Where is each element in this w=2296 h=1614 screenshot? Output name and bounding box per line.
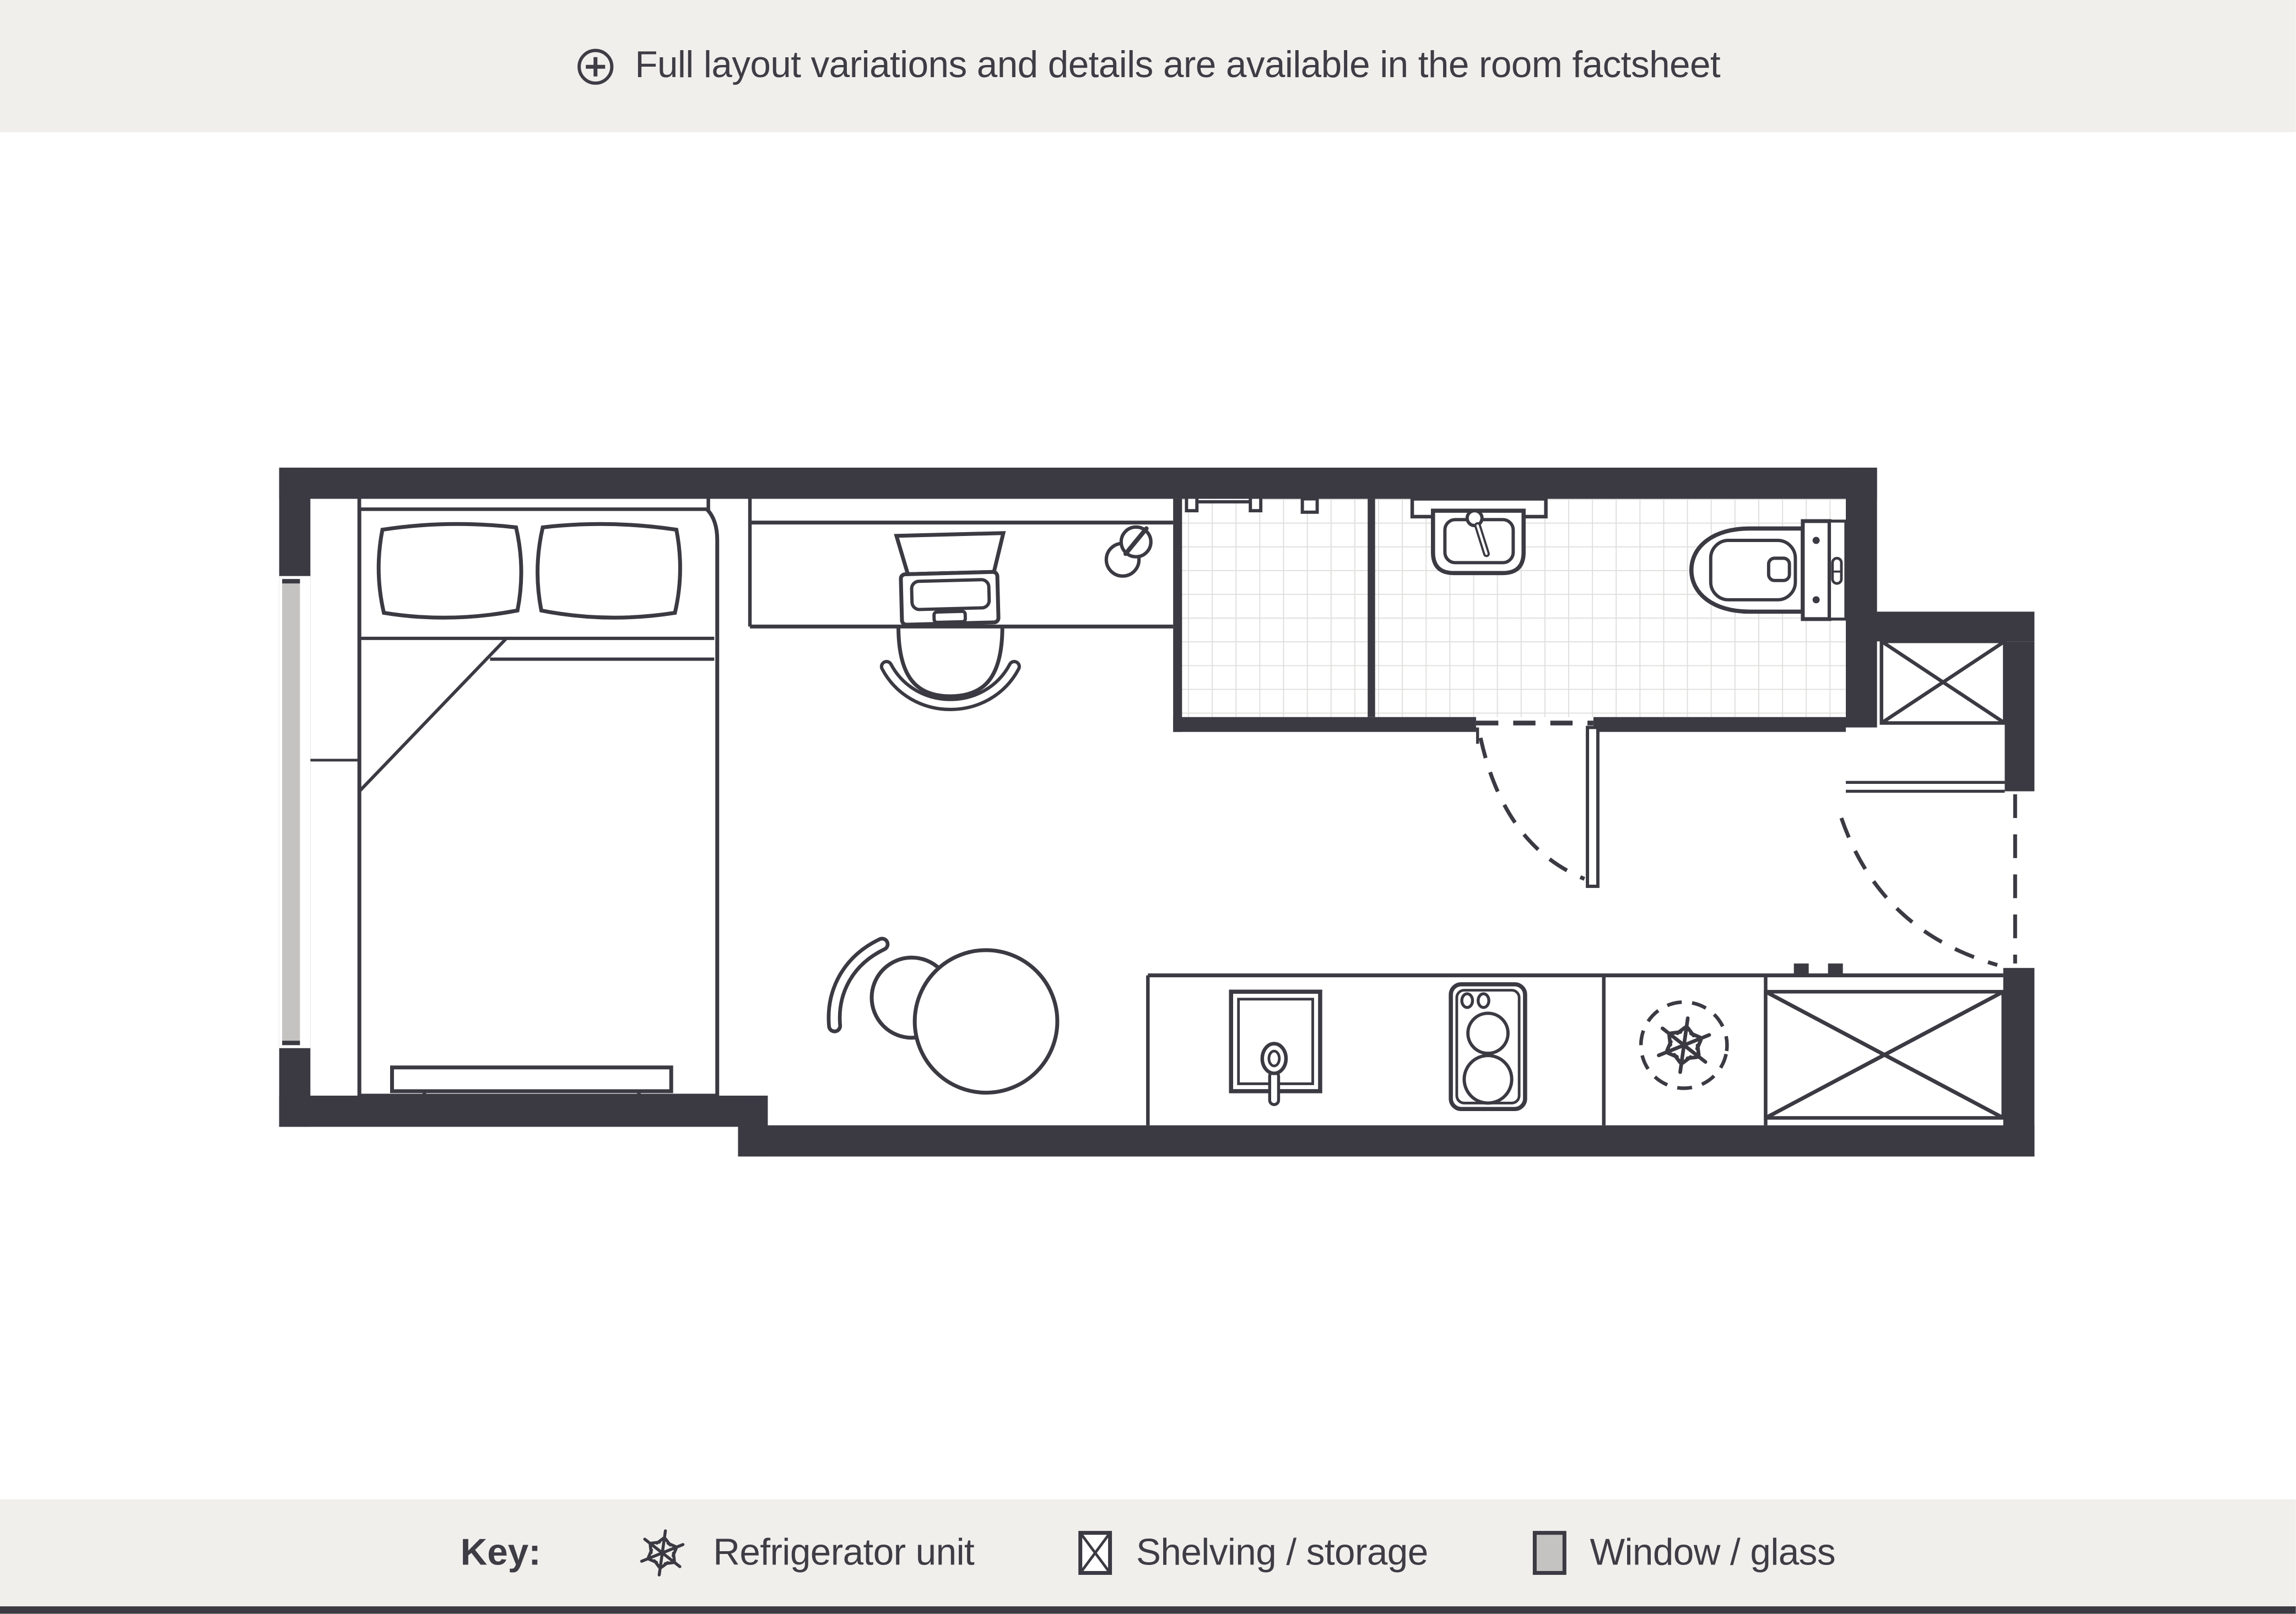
wall-niche-right: [2005, 641, 2034, 791]
hob-two-burners: [1451, 984, 1525, 1109]
entry-ledge: [1846, 782, 2005, 791]
laptop: [896, 533, 1004, 625]
desk-chair: [887, 626, 1014, 704]
legend-item-window: Window / glass: [1532, 1531, 1835, 1575]
refrigerator-snowflake: [1633, 994, 1735, 1096]
legend-title: Key:: [461, 1531, 541, 1574]
wall-bottom-right: [738, 1125, 2034, 1157]
gray-swatch-icon: [1532, 1531, 1566, 1575]
shelving-niche-crossed-box: [1882, 641, 2005, 723]
wall-shower-divider: [1368, 499, 1375, 717]
shower-control: [1303, 499, 1317, 512]
wall-niche-top: [1846, 611, 2034, 641]
legend-label: Shelving / storage: [1136, 1531, 1428, 1574]
legend-item-refrigerator: Refrigerator unit: [636, 1526, 974, 1580]
floorplan: [0, 0, 2296, 1606]
kitchen-sink: [1231, 992, 1320, 1104]
legend-item-shelving: Shelving / storage: [1078, 1531, 1428, 1575]
wall-bathroom-partition: [1173, 499, 1182, 732]
double-bed: [359, 487, 717, 1096]
toilet: [1692, 521, 1846, 619]
wall-bottom-left: [279, 1096, 768, 1127]
tap-icon: [1269, 1072, 1278, 1104]
legend-label: Refrigerator unit: [713, 1531, 974, 1574]
legend-label: Window / glass: [1590, 1531, 1835, 1574]
wall-bathroom-right: [1846, 468, 1877, 728]
wall-top: [279, 468, 1877, 499]
bathroom-door-swing: [1476, 723, 1598, 886]
kitchen-storage-crossed-box: [1765, 992, 2003, 1118]
page: Full layout variations and details are a…: [0, 0, 2296, 1606]
wall-bathroom-bottom-left: [1173, 717, 1476, 732]
round-table: [915, 950, 1057, 1093]
wall-bathroom-bottom-right: [1593, 717, 1846, 732]
crossed-box-icon: [1078, 1531, 1112, 1575]
window-strip: [279, 576, 311, 1048]
wall-right-kitchen: [2003, 968, 2035, 1156]
snowflake-icon: [636, 1526, 689, 1580]
desk-lamp: [1106, 527, 1151, 576]
entrance-door-swing: [1841, 794, 2015, 965]
legend-bar: Key: Refrigerator unit Shelving / storag…: [0, 1499, 2296, 1614]
